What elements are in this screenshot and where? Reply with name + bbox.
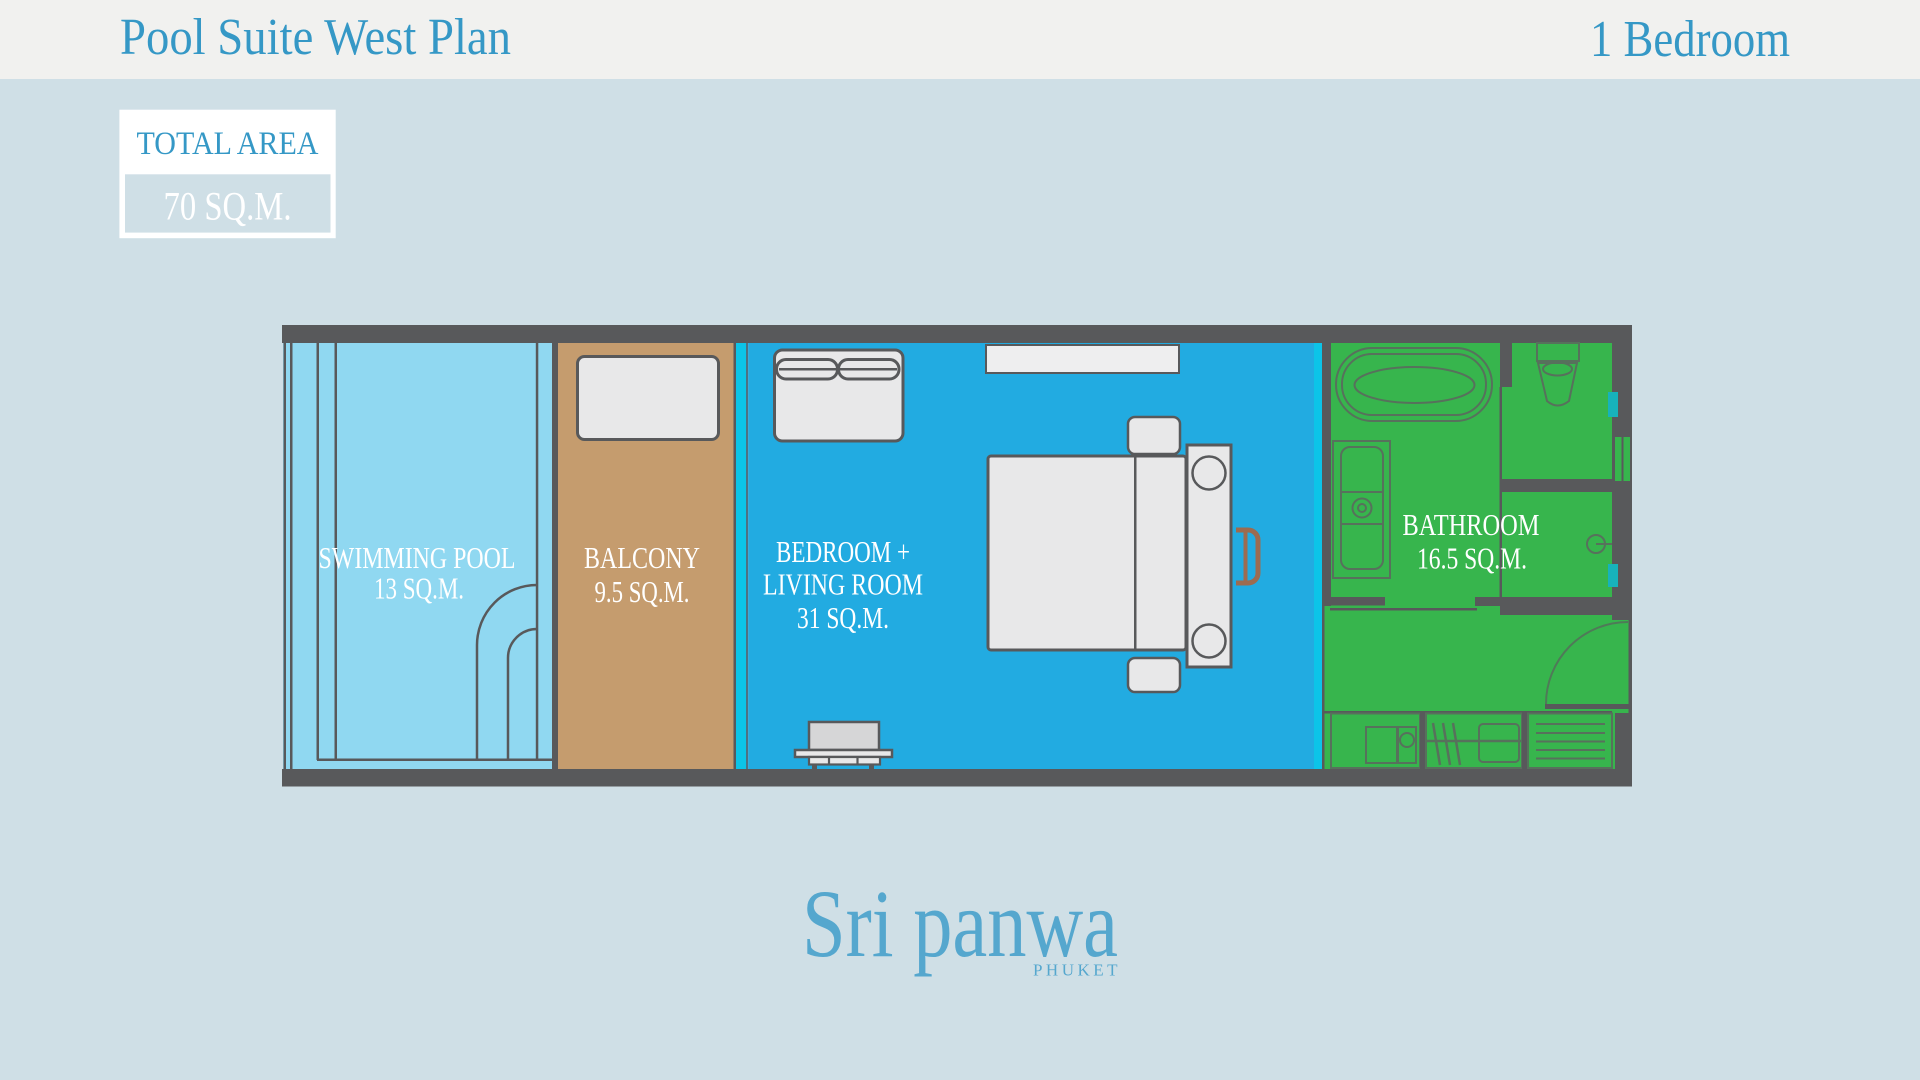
svg-text:PHUKET: PHUKET	[1033, 961, 1121, 980]
svg-text:16.5 SQ.M.: 16.5 SQ.M.	[1417, 541, 1527, 576]
svg-text:9.5 SQ.M.: 9.5 SQ.M.	[595, 574, 690, 609]
svg-text:13 SQ.M.: 13 SQ.M.	[374, 571, 464, 606]
svg-text:BEDROOM +: BEDROOM +	[776, 534, 910, 569]
svg-text:TOTAL AREA: TOTAL AREA	[137, 126, 319, 162]
svg-text:BATHROOM: BATHROOM	[1403, 507, 1540, 542]
svg-text:1 Bedroom: 1 Bedroom	[1590, 11, 1790, 68]
svg-text:70 SQ.M.: 70 SQ.M.	[164, 183, 292, 228]
svg-text:Pool Suite West Plan: Pool Suite West Plan	[120, 9, 511, 66]
svg-text:LIVING ROOM: LIVING ROOM	[763, 567, 923, 602]
svg-text:BALCONY: BALCONY	[584, 540, 700, 575]
svg-text:31 SQ.M.: 31 SQ.M.	[797, 600, 889, 635]
